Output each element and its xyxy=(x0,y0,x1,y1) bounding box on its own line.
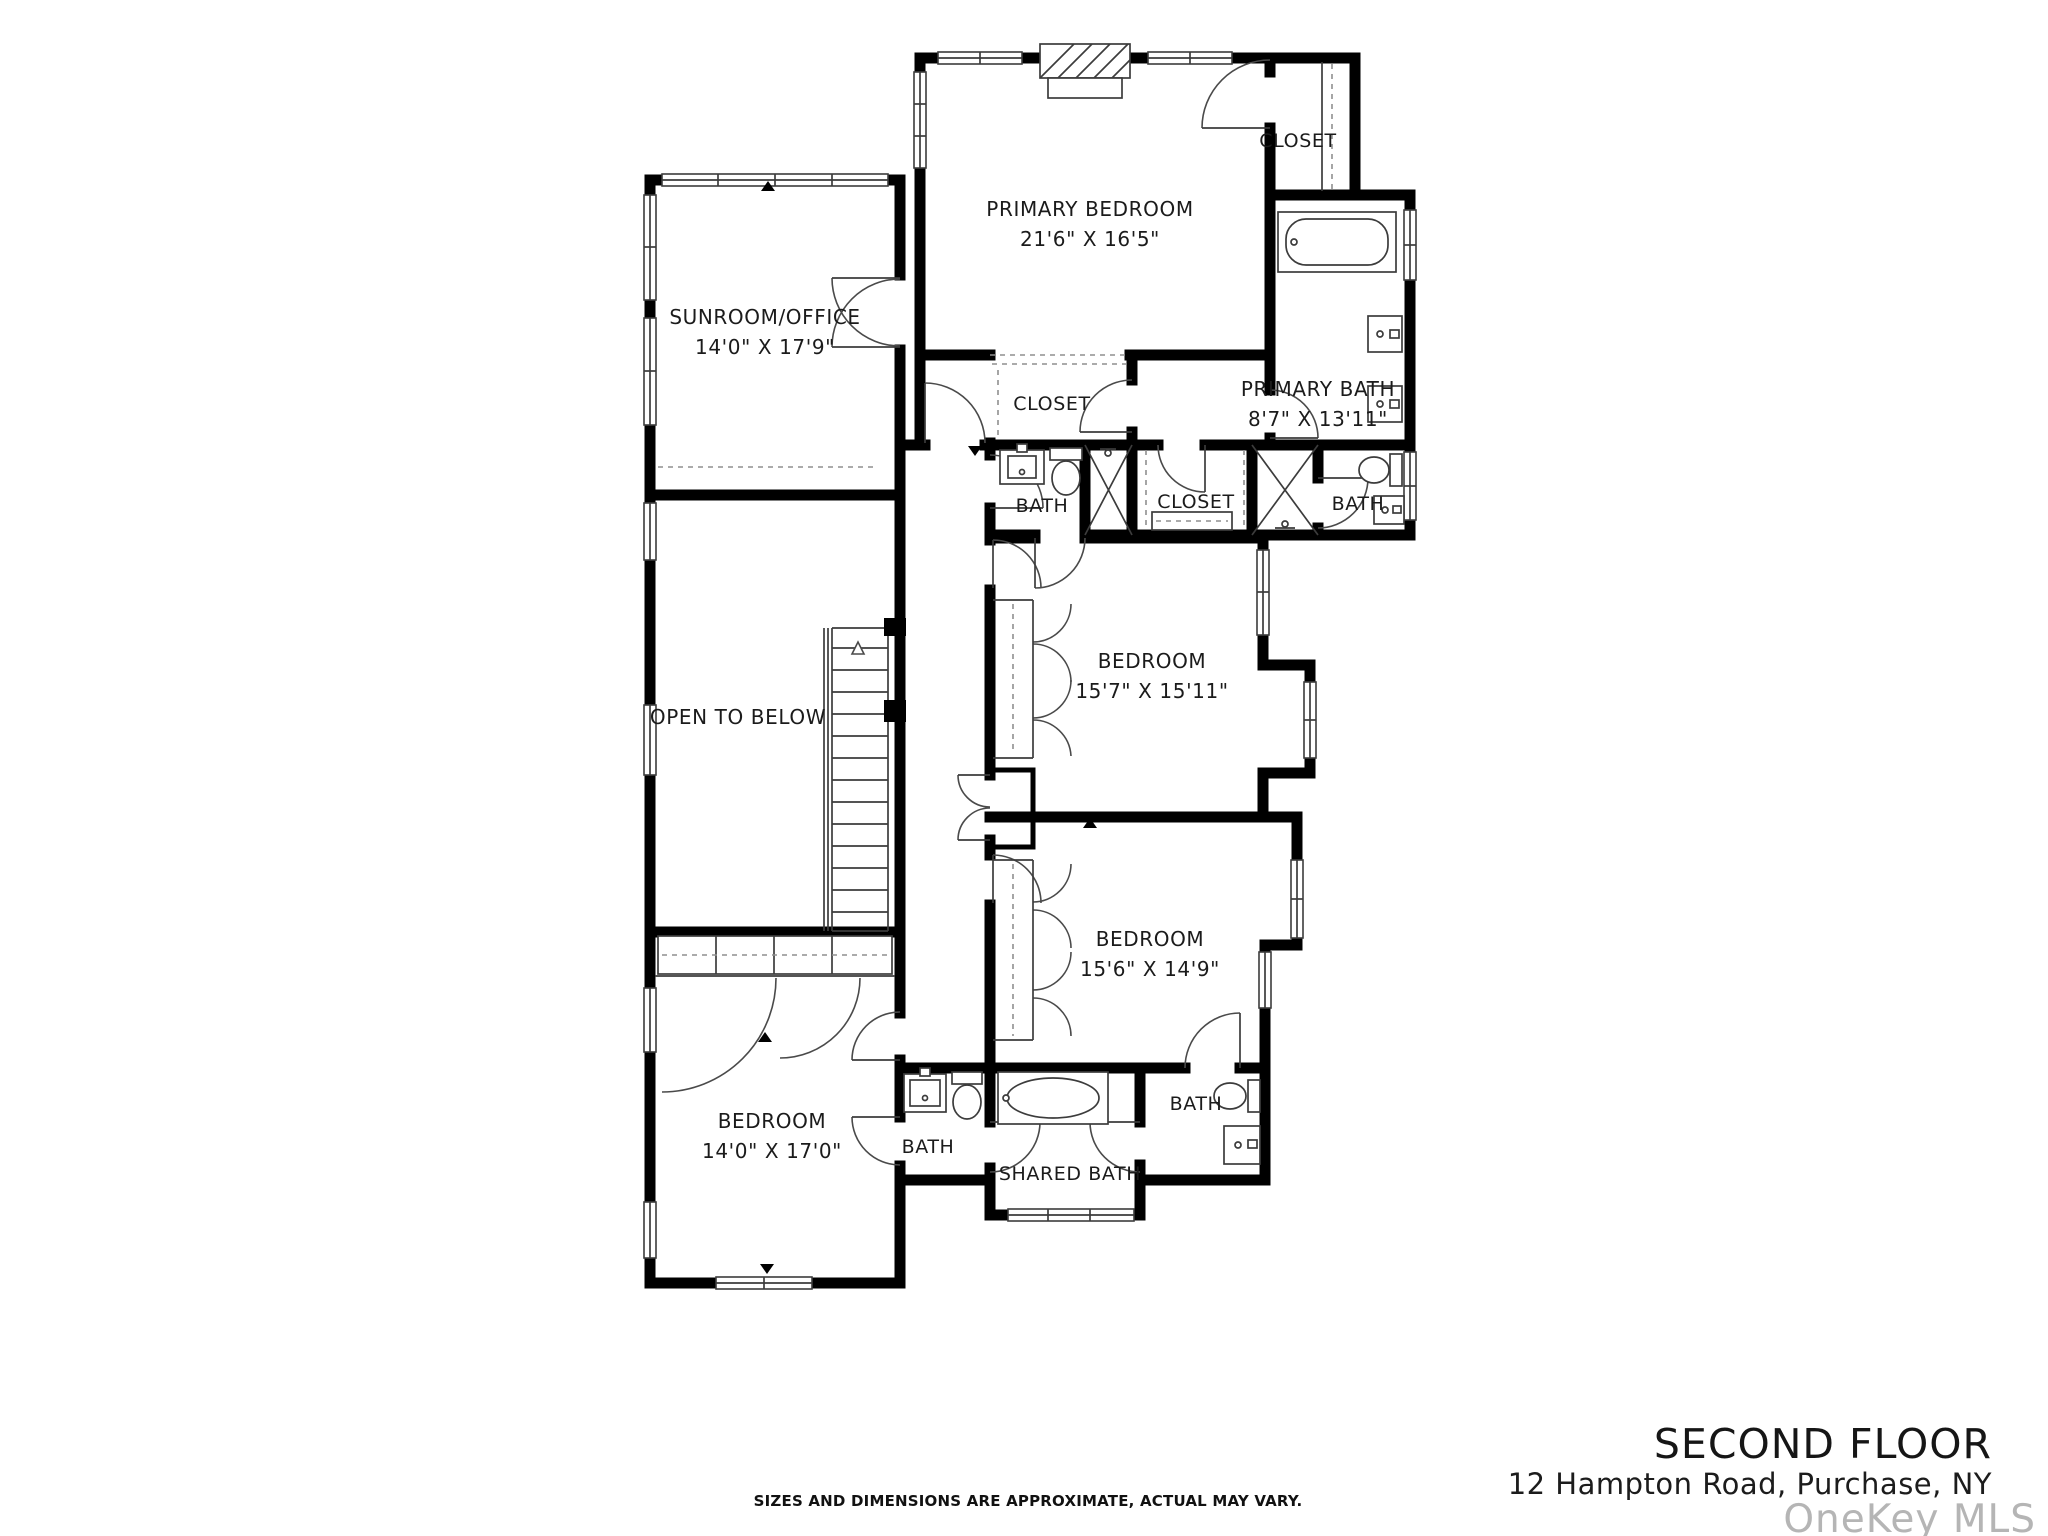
shower-icon xyxy=(1085,445,1132,535)
label-shared-bath: SHARED BATH xyxy=(999,1163,1141,1185)
label-bedroom-lower: BEDROOM xyxy=(1096,927,1205,951)
label-primary-bath-dims: 8'7" X 13'11" xyxy=(1248,407,1388,431)
toilet-icon xyxy=(1050,448,1082,495)
label-bedroom-left-dims: 14'0" X 17'0" xyxy=(702,1139,842,1163)
label-closet-mid-left: CLOSET xyxy=(1013,393,1090,415)
sink-icon xyxy=(1000,444,1044,484)
footer: SIZES AND DIMENSIONS ARE APPROXIMATE, AC… xyxy=(754,1420,2036,1536)
label-bedroom-lower-dims: 15'6" X 14'9" xyxy=(1080,957,1220,981)
floor-title: SECOND FLOOR xyxy=(1654,1420,1992,1468)
label-bath-mid-right: BATH xyxy=(1332,493,1385,515)
sink-icon xyxy=(904,1068,946,1112)
shower-icon xyxy=(1252,445,1318,535)
toilet-icon xyxy=(952,1072,982,1119)
label-bath-bottom-left: BATH xyxy=(902,1136,955,1158)
floor-plan-page: PRIMARY BEDROOM 21'6" X 16'5" SUNROOM/OF… xyxy=(0,0,2048,1536)
sink-icon xyxy=(1224,1126,1260,1164)
label-bedroom-left: BEDROOM xyxy=(718,1109,827,1133)
room-labels: PRIMARY BEDROOM 21'6" X 16'5" SUNROOM/OF… xyxy=(650,130,1395,1185)
bathtub-icon xyxy=(998,1072,1108,1124)
label-primary-bedroom-dims: 21'6" X 16'5" xyxy=(1020,227,1160,251)
label-sunroom-office: SUNROOM/OFFICE xyxy=(669,305,860,329)
label-bedroom-mid: BEDROOM xyxy=(1098,649,1207,673)
label-bath-bottom-right: BATH xyxy=(1170,1093,1223,1115)
bathtub-icon xyxy=(1278,212,1396,272)
watermark-text: OneKey MLS xyxy=(1783,1497,2036,1536)
label-primary-bedroom: PRIMARY BEDROOM xyxy=(986,197,1193,221)
label-primary-bath: PRIMARY BATH xyxy=(1241,377,1395,401)
stairs xyxy=(824,618,906,931)
label-bath-mid-left: BATH xyxy=(1016,495,1069,517)
label-sunroom-office-dims: 14'0" X 17'9" xyxy=(695,335,835,359)
label-closet-top-right: CLOSET xyxy=(1259,130,1336,152)
sink-icon xyxy=(1368,316,1402,352)
floor-plan-drawing: PRIMARY BEDROOM 21'6" X 16'5" SUNROOM/OF… xyxy=(0,0,2048,1536)
label-bedroom-mid-dims: 15'7" X 15'11" xyxy=(1075,679,1228,703)
disclaimer-text: SIZES AND DIMENSIONS ARE APPROXIMATE, AC… xyxy=(754,1492,1303,1510)
fireplace-icon xyxy=(1040,44,1130,98)
address-text: 12 Hampton Road, Purchase, NY xyxy=(1508,1467,1992,1501)
label-closet-mid: CLOSET xyxy=(1157,491,1234,513)
label-open-to-below: OPEN TO BELOW xyxy=(650,705,826,729)
toilet-icon xyxy=(1359,454,1402,486)
